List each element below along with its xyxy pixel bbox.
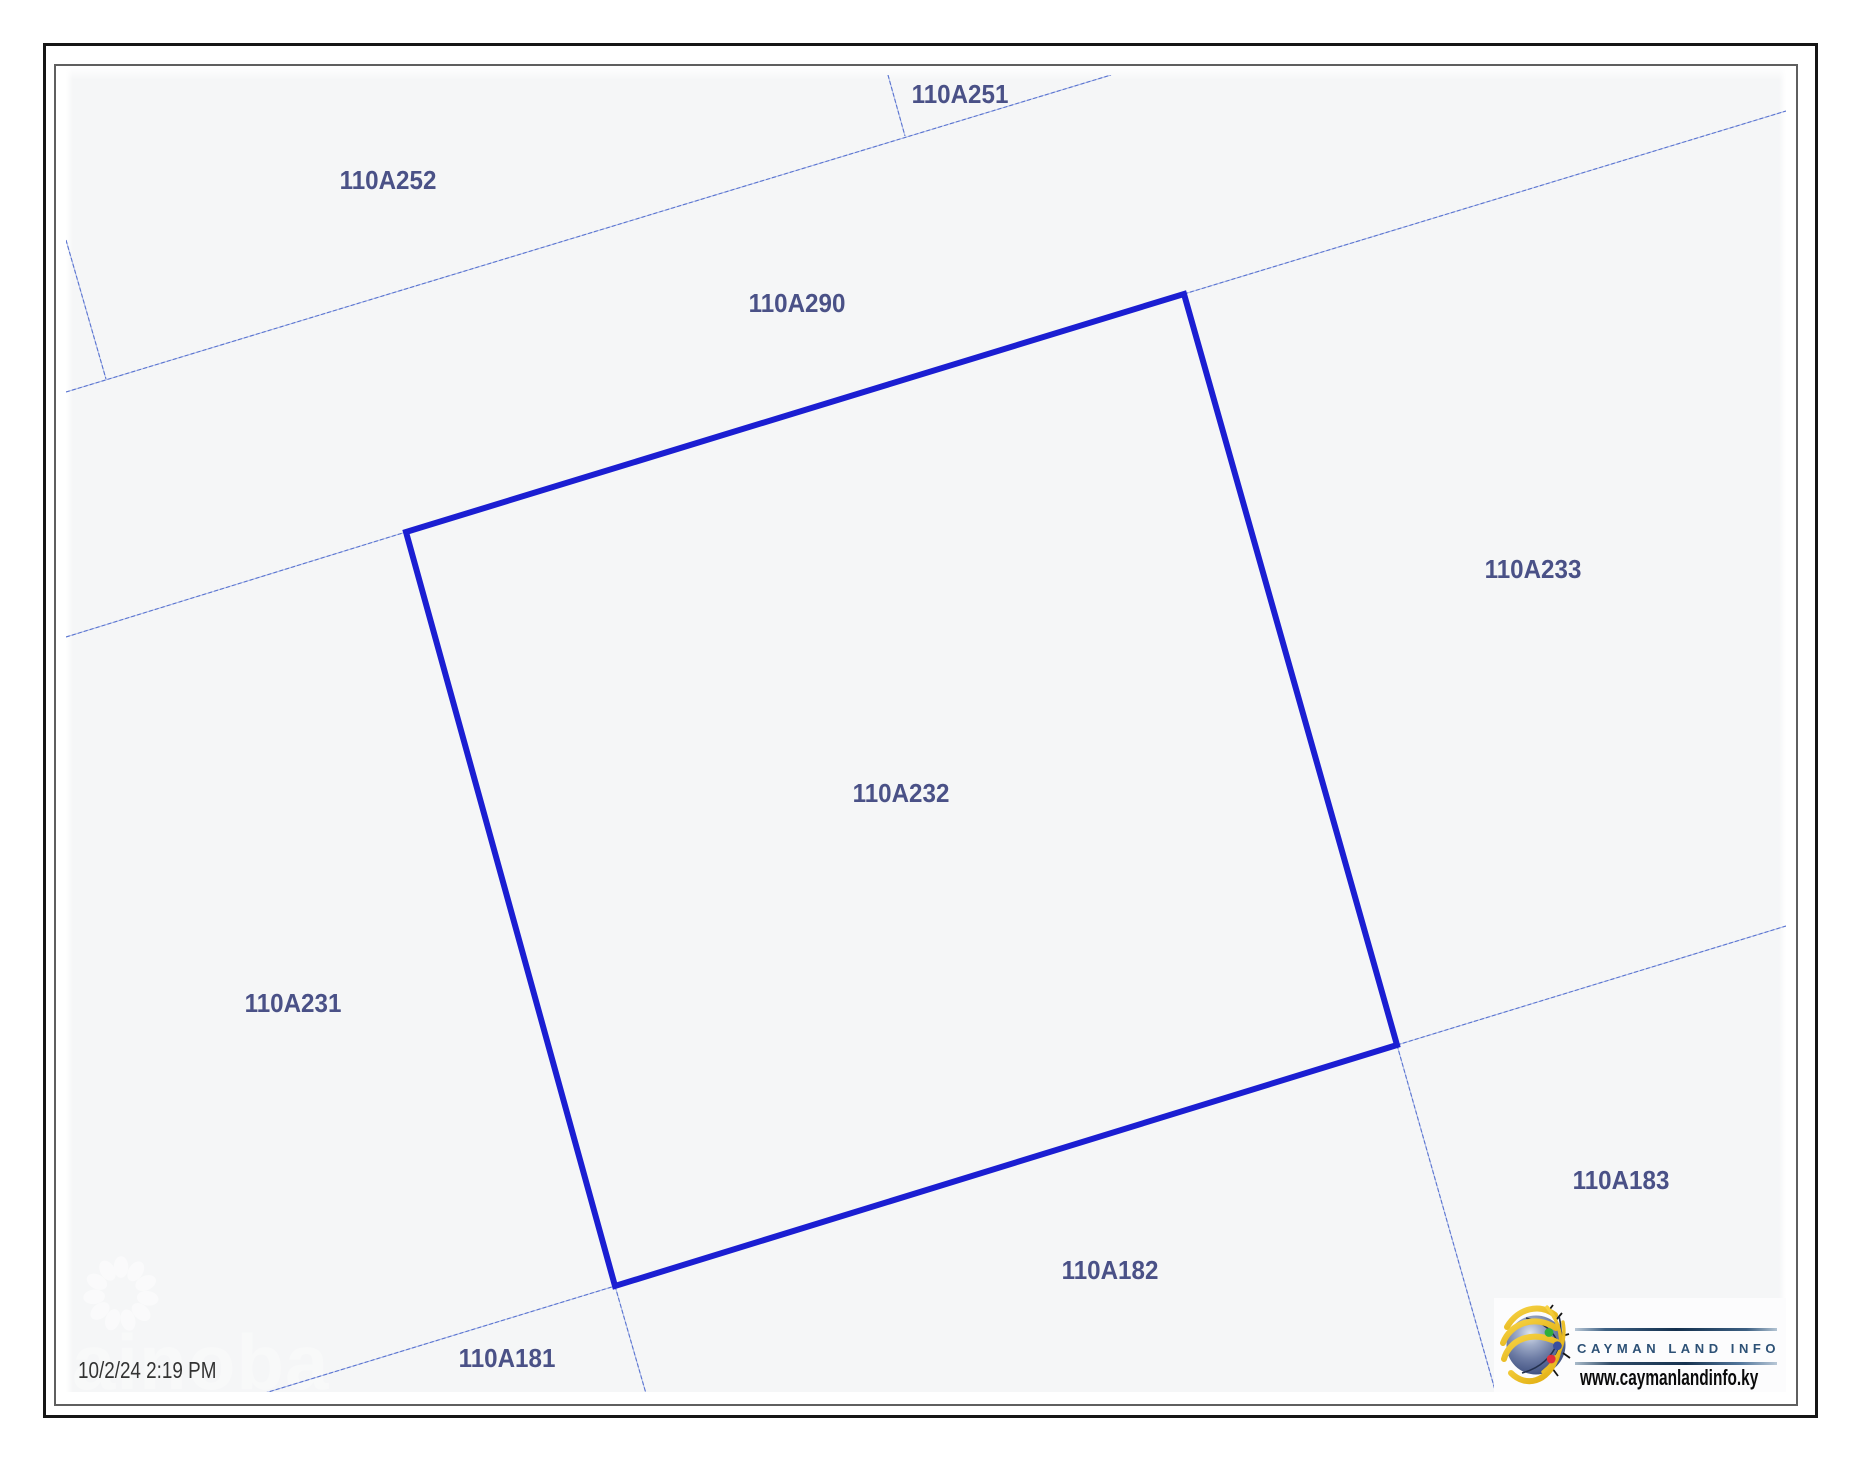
svg-text:110A251: 110A251 [912, 80, 1009, 109]
svg-text:110A181: 110A181 [459, 1344, 556, 1373]
svg-text:110A233: 110A233 [1485, 555, 1582, 584]
svg-text:110A290: 110A290 [749, 289, 846, 318]
svg-text:110A232: 110A232 [853, 779, 950, 808]
svg-text:110A252: 110A252 [340, 166, 437, 195]
svg-text:110A183: 110A183 [1573, 1166, 1670, 1195]
svg-text:110A182: 110A182 [1062, 1256, 1159, 1285]
svg-text:110A231: 110A231 [245, 989, 342, 1018]
